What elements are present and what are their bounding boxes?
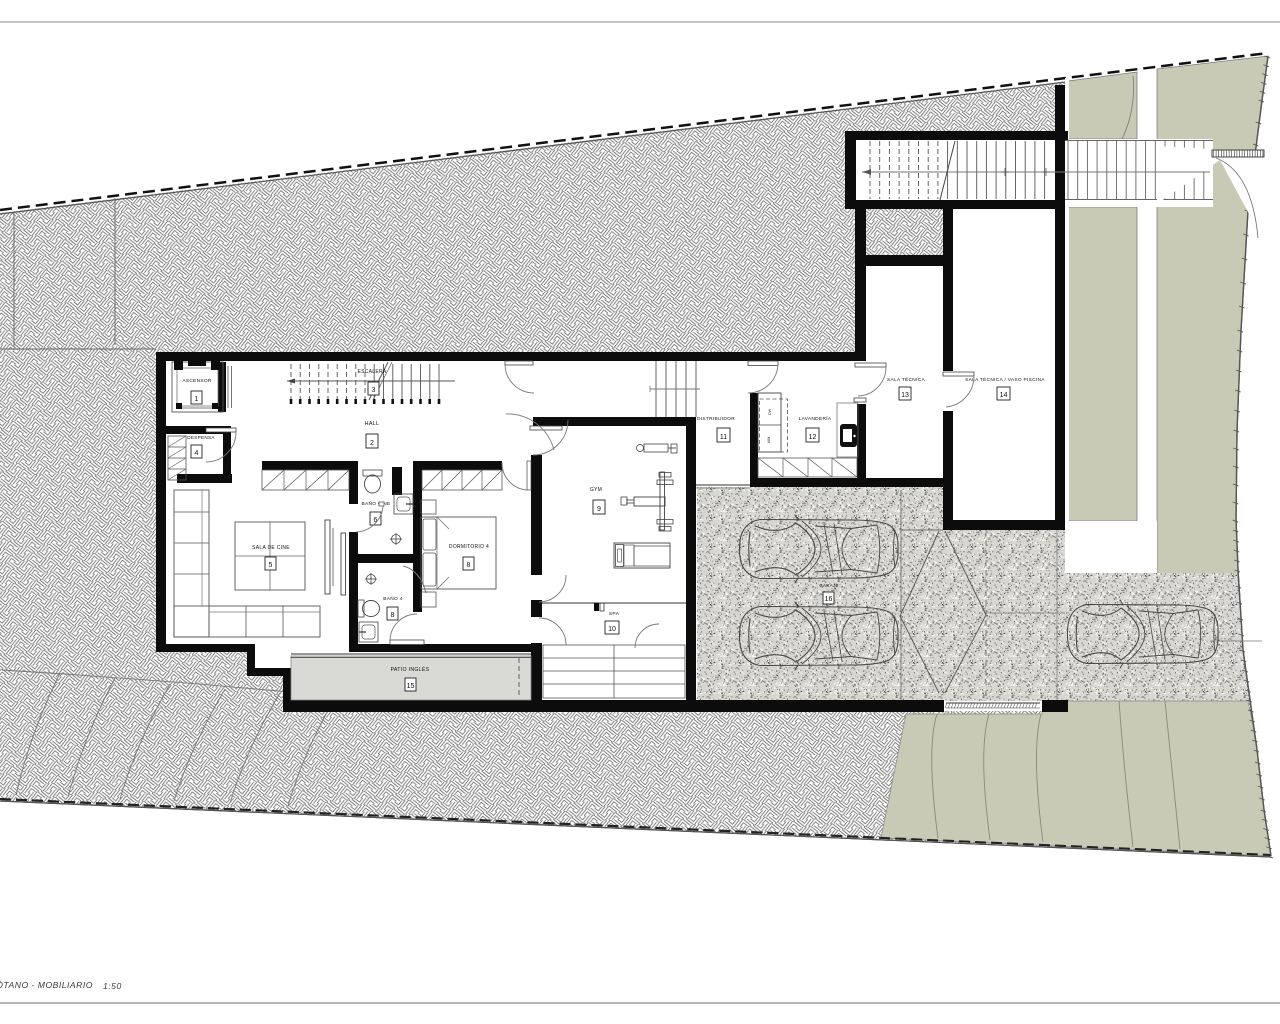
svg-text:ESCALERA: ESCALERA <box>357 369 386 375</box>
svg-text:14: 14 <box>1000 392 1008 399</box>
svg-text:HALL: HALL <box>365 421 380 427</box>
svg-text:BAÑO CINE: BAÑO CINE <box>361 500 390 507</box>
svg-text:DESPENSA: DESPENSA <box>187 435 215 440</box>
svg-text:SÓTANO - MOBILIARIO: SÓTANO - MOBILIARIO <box>0 980 93 990</box>
svg-text:BAÑO 4: BAÑO 4 <box>383 595 402 602</box>
svg-text:SALA TÉCNICA: SALA TÉCNICA <box>887 376 925 383</box>
svg-text:15: 15 <box>407 683 415 690</box>
svg-text:LAVANDERÍA: LAVANDERÍA <box>799 415 832 422</box>
svg-text:1:50: 1:50 <box>103 981 122 991</box>
svg-text:1: 1 <box>195 396 199 403</box>
svg-text:8: 8 <box>391 612 395 619</box>
svg-text:WM: WM <box>767 437 771 443</box>
svg-text:GYM: GYM <box>590 487 602 493</box>
svg-text:9: 9 <box>597 506 601 513</box>
svg-text:ASCENSOR: ASCENSOR <box>182 378 212 384</box>
svg-text:4: 4 <box>195 450 199 457</box>
svg-text:DW: DW <box>768 408 772 415</box>
svg-text:SPA: SPA <box>609 611 620 617</box>
svg-text:8: 8 <box>467 562 471 569</box>
svg-text:SALA TÉCNICA / VASO PISCINA: SALA TÉCNICA / VASO PISCINA <box>965 376 1045 383</box>
svg-text:2: 2 <box>370 440 374 447</box>
svg-text:16: 16 <box>825 596 833 603</box>
svg-text:SALA DE CINE: SALA DE CINE <box>252 545 290 551</box>
svg-text:DORMITORIO 4: DORMITORIO 4 <box>449 544 489 550</box>
svg-text:11: 11 <box>720 434 727 441</box>
svg-text:12: 12 <box>809 434 817 441</box>
svg-text:GARAJE: GARAJE <box>819 583 838 588</box>
svg-text:5: 5 <box>269 562 273 569</box>
svg-text:3: 3 <box>372 387 376 394</box>
svg-text:DISTRIBUIDOR: DISTRIBUIDOR <box>697 416 735 422</box>
svg-text:13: 13 <box>901 392 909 399</box>
svg-text:PATIO INGLÉS: PATIO INGLÉS <box>391 666 430 673</box>
svg-text:10: 10 <box>608 626 616 633</box>
